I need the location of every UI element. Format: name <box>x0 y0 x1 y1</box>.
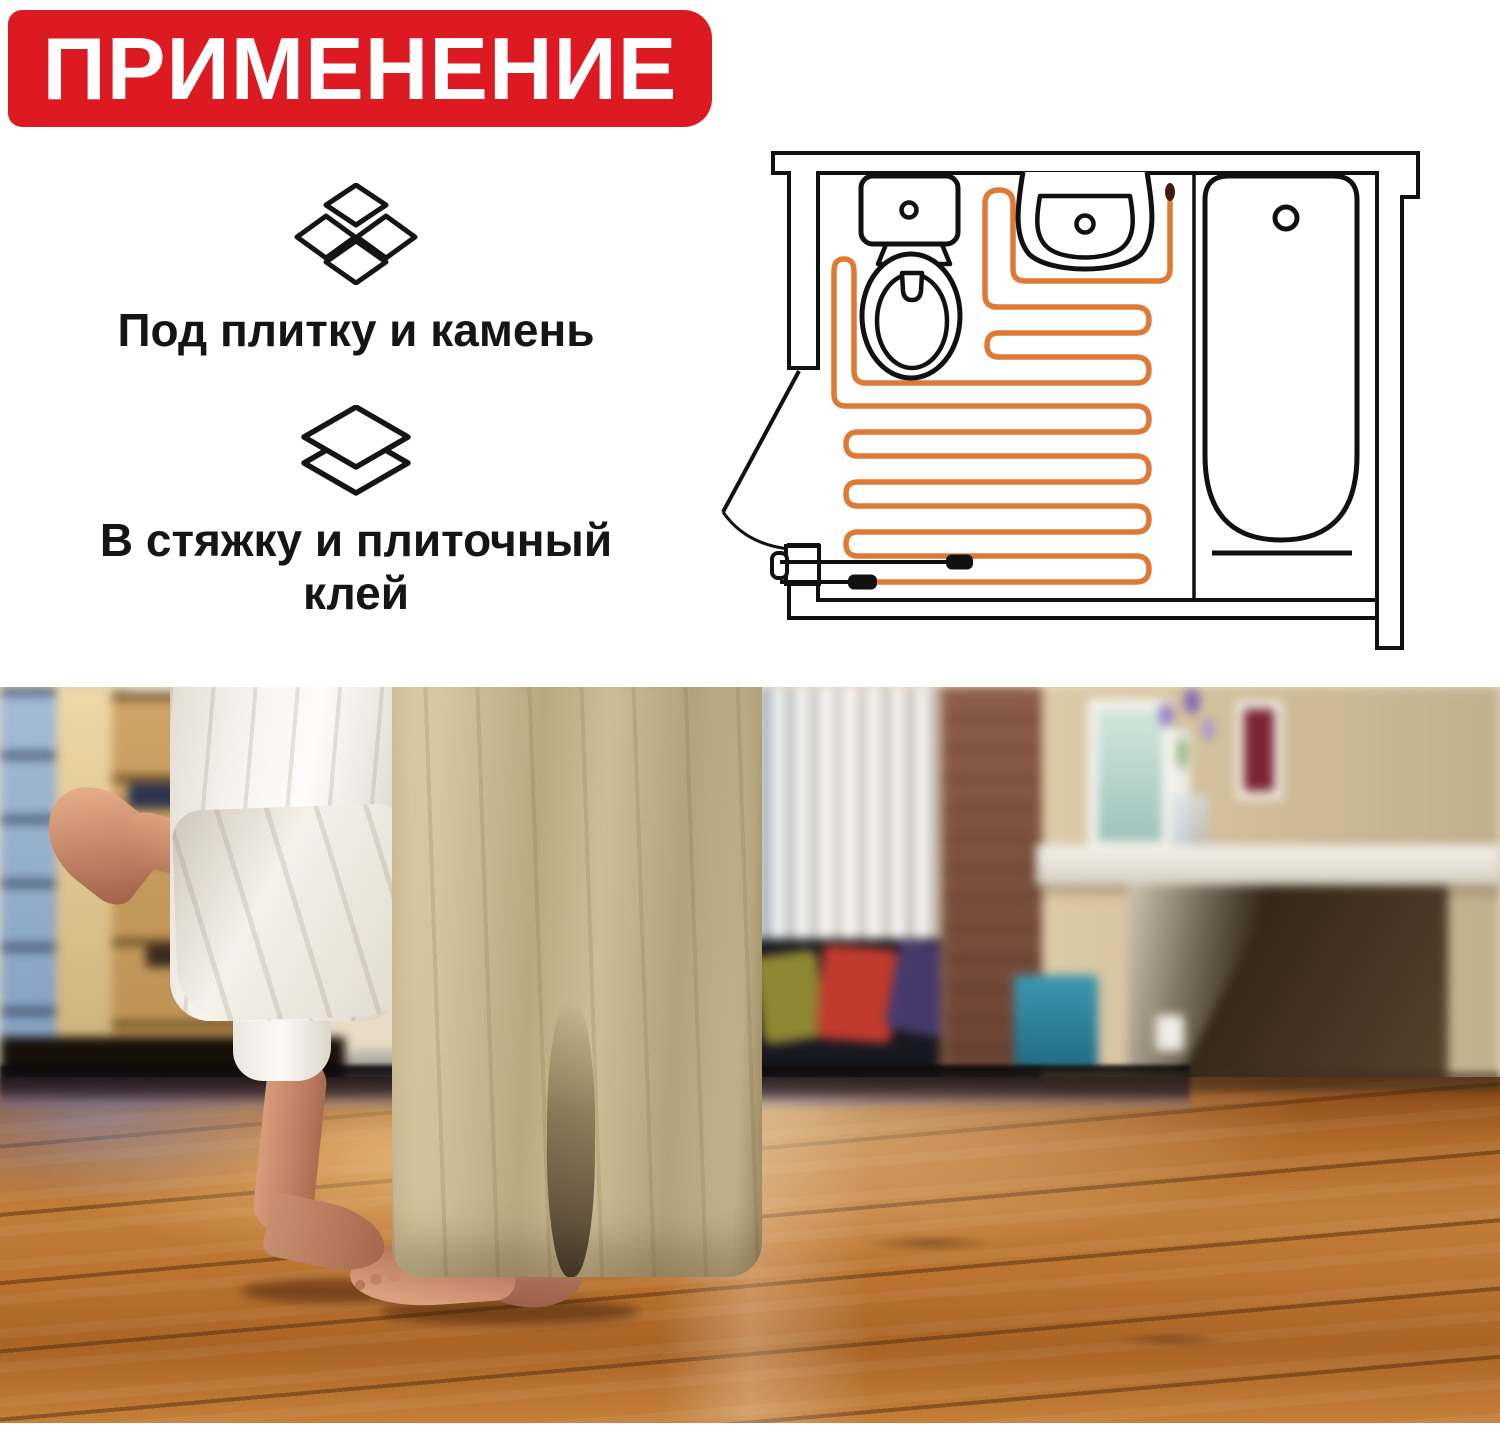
layers-icon <box>300 405 412 497</box>
tiles-icon <box>294 183 418 285</box>
feature-label: Под плитку и камень <box>0 304 712 357</box>
sink <box>1018 172 1152 269</box>
woman-pant-cuff <box>171 803 406 1023</box>
man-khaki-pants <box>392 687 762 1277</box>
feature-layers: В стяжку и плиточный клей <box>0 405 712 620</box>
lifestyle-photo <box>0 687 1500 1423</box>
power-terminal <box>848 575 877 590</box>
product-infographic: ПРИМЕНЕНИЕ Под плитку и камень В <box>0 0 1500 1437</box>
photo-pillow <box>817 945 897 1044</box>
feature-list: Под плитку и камень В стяжку и плиточный… <box>0 0 712 660</box>
feature-label: В стяжку и плиточный клей <box>76 514 636 620</box>
photo-picture-frame <box>1236 701 1282 799</box>
door <box>723 371 799 549</box>
bathtub <box>1205 176 1357 553</box>
floor-shadow-right <box>1042 1071 1500 1091</box>
feature-tiles: Под плитку и камень <box>0 183 712 357</box>
photo-flowers <box>1150 687 1222 799</box>
man-toes <box>352 1267 404 1301</box>
photo-console-shelf <box>1036 845 1500 885</box>
photo-storage-box <box>1014 975 1098 1071</box>
toilet <box>861 176 960 378</box>
photo-cup <box>1156 1015 1184 1051</box>
sensor-terminal <box>946 555 973 570</box>
bathroom-plan-diagram <box>700 135 1460 670</box>
pants-fold-shadow <box>547 1001 595 1277</box>
cable-end-tip <box>1165 183 1175 201</box>
